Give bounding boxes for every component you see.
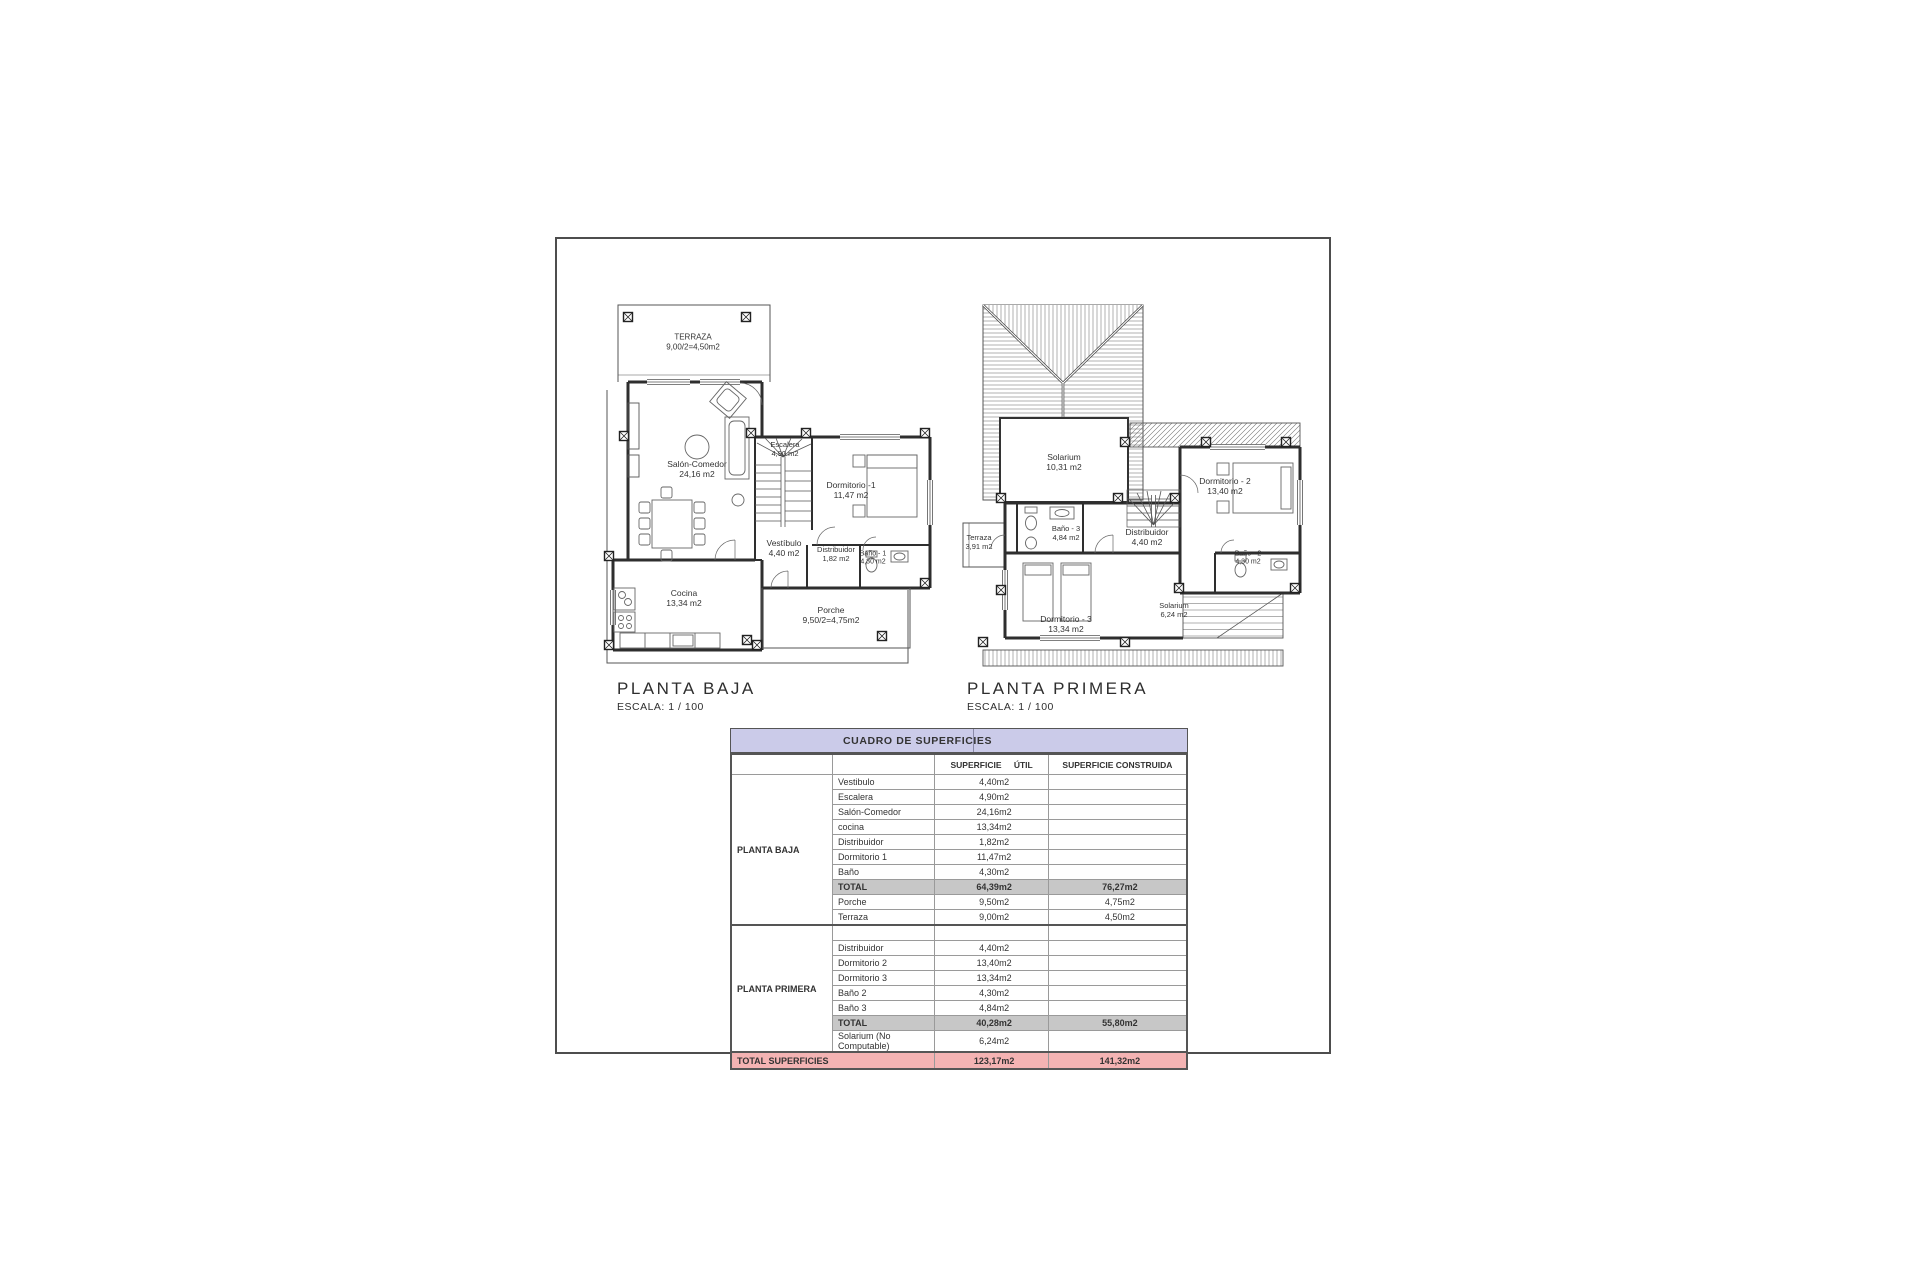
cell-construida: 4,50m2: [1048, 910, 1187, 926]
cell-construida: [1048, 775, 1187, 790]
sofa-icon: [685, 382, 749, 506]
cell-util: 9,00m2: [935, 910, 1048, 926]
cell-construida: [1048, 971, 1187, 986]
cell-util: 1,82m2: [935, 835, 1048, 850]
header-superficie-construida: SUPERFICIE CONSTRUIDA: [1048, 754, 1187, 775]
planta-primera-title: PLANTA PRIMERA ESCALA: 1 / 100: [967, 679, 1148, 713]
room-label-dormitorio3: Dormitorio - 313,34 m2: [1040, 614, 1091, 634]
cell-label: Terraza: [832, 910, 934, 926]
table-row: PLANTA BAJAVestibulo4,40m2: [731, 775, 1187, 790]
cell-util: 13,34m2: [935, 971, 1048, 986]
group-label: PLANTA PRIMERA: [731, 925, 832, 1052]
table-title: CUADRO DE SUPERFICIES: [843, 735, 992, 747]
cell-util: 11,47m2: [935, 850, 1048, 865]
drawing-page: TERRAZA9,00/2=4,50m2 Salón-Comedor24,16 …: [0, 0, 1920, 1280]
room-label-terraza-primera: Terraza3,91 m2: [965, 533, 992, 551]
cell-label: Distribuidor: [832, 941, 934, 956]
cell-label: cocina: [832, 820, 934, 835]
cell-construida: [1048, 820, 1187, 835]
grand-total-label: TOTAL SUPERFICIES: [731, 1052, 935, 1069]
eave-hatch-bottom: [983, 650, 1283, 666]
cell-label: Distribuidor: [832, 835, 934, 850]
planta-baja-plan-drawing: [595, 295, 945, 680]
cell-util: 4,84m2: [935, 1001, 1048, 1016]
room-label-cocina: Cocina13,34 m2: [666, 588, 701, 608]
cell-util: [935, 925, 1048, 941]
cell-label: Salón-Comedor: [832, 805, 934, 820]
room-label-dormitorio2: Dormitorio - 213,40 m2: [1199, 476, 1250, 496]
table-row: PLANTA PRIMERA: [731, 925, 1187, 941]
planta-primera-plan-drawing: [955, 295, 1345, 680]
cell-label: Dormitorio 1: [832, 850, 934, 865]
cell-construida: 55,80m2: [1048, 1016, 1187, 1031]
cell-label: Porche: [832, 895, 934, 910]
header-empty-1: [731, 754, 832, 775]
cell-label: Vestibulo: [832, 775, 934, 790]
cell-util: 6,24m2: [935, 1031, 1048, 1053]
room-label-bano1: Baño - 14,30 m2: [860, 551, 886, 568]
cell-construida: [1048, 925, 1187, 941]
cell-util: 40,28m2: [935, 1016, 1048, 1031]
partitions: [1017, 503, 1215, 593]
planta-baja-title: PLANTA BAJA ESCALA: 1 / 100: [617, 679, 756, 713]
cell-construida: [1048, 1031, 1187, 1053]
room-label-salon: Salón-Comedor24,16 m2: [667, 459, 727, 479]
cell-util: 13,34m2: [935, 820, 1048, 835]
room-label-vestibulo: Vestíbulo4,40 m2: [767, 538, 802, 558]
cell-construida: [1048, 986, 1187, 1001]
cell-util: 64,39m2: [935, 880, 1048, 895]
surface-table: CUADRO DE SUPERFICIES SUPERFICIE ÚTIL SU…: [730, 728, 1188, 1070]
cell-label: TOTAL: [832, 880, 934, 895]
cell-construida: [1048, 1001, 1187, 1016]
eave-hatch-right: [1130, 423, 1300, 447]
cell-construida: [1048, 835, 1187, 850]
fireplace: [628, 403, 639, 477]
cell-util: 13,40m2: [935, 956, 1048, 971]
room-label-terraza: TERRAZA9,00/2=4,50m2: [666, 332, 720, 351]
room-label-distribuidor-baja: Distribuidor1,82 m2: [817, 545, 855, 563]
room-label-solarium2: Solarium6,24 m2: [1159, 601, 1189, 619]
cell-label: Baño: [832, 865, 934, 880]
cell-util: 24,16m2: [935, 805, 1048, 820]
cell-label: Solarium (No Computable): [832, 1031, 934, 1053]
grand-total-construida: 141,32m2: [1048, 1052, 1187, 1069]
cell-construida: [1048, 956, 1187, 971]
header-superficie-util: SUPERFICIE ÚTIL: [935, 754, 1048, 775]
surface-table-grid: SUPERFICIE ÚTIL SUPERFICIE CONSTRUIDA PL…: [730, 753, 1188, 1070]
cell-util: 4,40m2: [935, 775, 1048, 790]
grand-total-row: TOTAL SUPERFICIES123,17m2141,32m2: [731, 1052, 1187, 1069]
room-label-escalera: Escalera4,90 m2: [770, 440, 799, 458]
cell-label: Baño 2: [832, 986, 934, 1001]
cell-util: 9,50m2: [935, 895, 1048, 910]
cell-util: 4,40m2: [935, 941, 1048, 956]
room-label-bano2: Baño - 24,30 m2: [1235, 551, 1261, 568]
cell-construida: [1048, 865, 1187, 880]
cell-label: Escalera: [832, 790, 934, 805]
solarium-lower: [1183, 593, 1283, 638]
room-label-distribuidor-primera: Distribuidor4,40 m2: [1126, 527, 1169, 547]
walls: [613, 382, 930, 650]
twin-beds: [1023, 563, 1091, 621]
table-header-row: SUPERFICIE ÚTIL SUPERFICIE CONSTRUIDA: [731, 754, 1187, 775]
cell-label: Dormitorio 3: [832, 971, 934, 986]
cell-label: [832, 925, 934, 941]
table-title-bar: CUADRO DE SUPERFICIES: [730, 728, 1188, 753]
cell-construida: 4,75m2: [1048, 895, 1187, 910]
table-title-divider: [973, 729, 974, 752]
room-label-porche: Porche9,50/2=4,75m2: [803, 605, 860, 625]
header-empty-2: [832, 754, 934, 775]
cell-util: 4,90m2: [935, 790, 1048, 805]
cell-label: Baño 3: [832, 1001, 934, 1016]
dining-table: [639, 487, 705, 561]
room-label-dormitorio1: Dormitorio -111,47 m2: [826, 480, 875, 500]
cell-util: 4,30m2: [935, 986, 1048, 1001]
cell-construida: [1048, 941, 1187, 956]
cell-util: 4,30m2: [935, 865, 1048, 880]
room-label-bano3: Baño - 34,84 m2: [1052, 524, 1080, 542]
cell-label: Dormitorio 2: [832, 956, 934, 971]
grand-total-util: 123,17m2: [935, 1052, 1048, 1069]
cell-construida: [1048, 805, 1187, 820]
cell-construida: [1048, 850, 1187, 865]
cell-label: TOTAL: [832, 1016, 934, 1031]
cell-construida: 76,27m2: [1048, 880, 1187, 895]
cell-construida: [1048, 790, 1187, 805]
room-label-solarium: Solarium10,31 m2: [1046, 452, 1081, 472]
group-label: PLANTA BAJA: [731, 775, 832, 926]
